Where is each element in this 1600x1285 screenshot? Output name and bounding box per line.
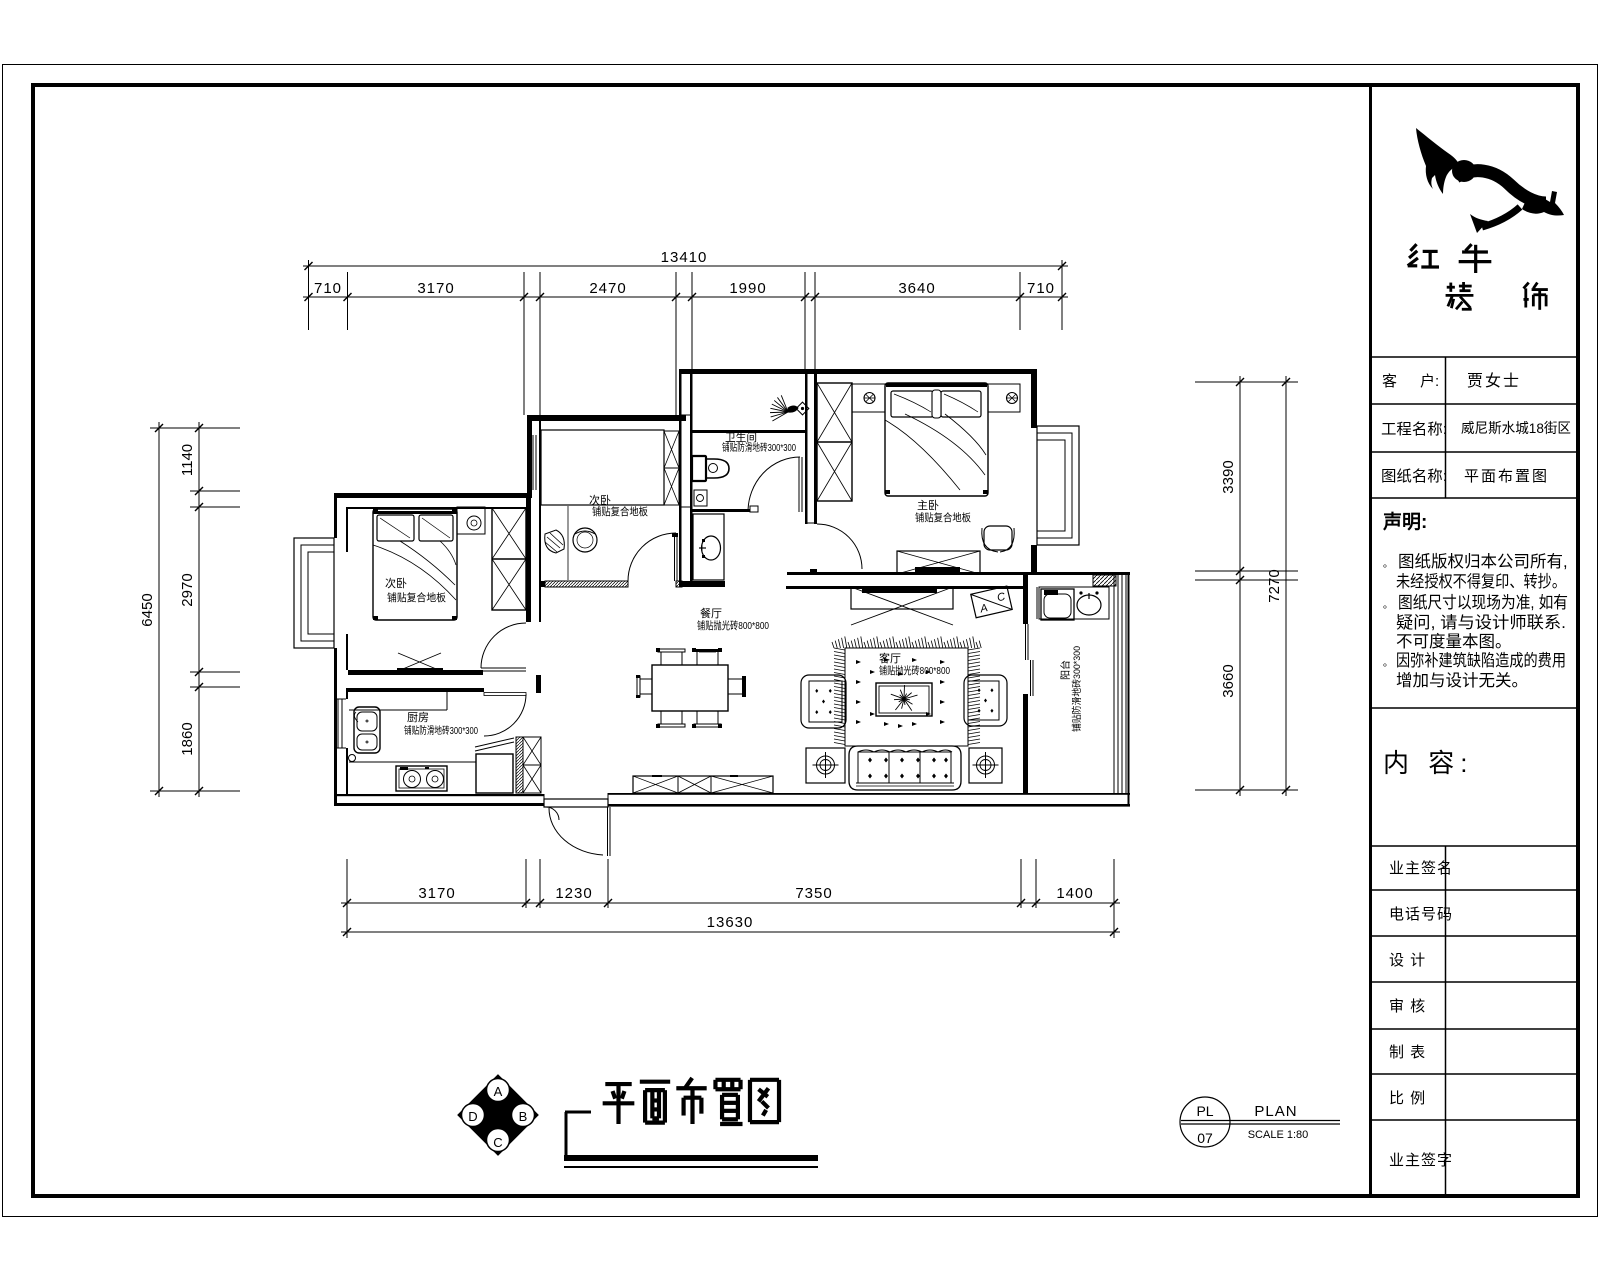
svg-text:3170: 3170 xyxy=(418,885,455,902)
svg-text:。: 。 xyxy=(1383,559,1393,570)
svg-text:电话号码: 电话号码 xyxy=(1389,906,1453,923)
svg-text:客厅: 客厅 xyxy=(879,651,901,665)
svg-text:声明:: 声明: xyxy=(1382,510,1427,533)
svg-text:A: A xyxy=(494,1084,503,1099)
svg-text:13410: 13410 xyxy=(661,249,708,266)
svg-text:2470: 2470 xyxy=(589,280,626,297)
svg-text:铺贴复合地板: 铺贴复合地板 xyxy=(592,505,648,518)
svg-text:铺贴防滑地砖300*300: 铺贴防滑地砖300*300 xyxy=(1071,646,1083,732)
svg-text:6450: 6450 xyxy=(139,593,156,626)
svg-text:铺贴抛光砖800*800: 铺贴抛光砖800*800 xyxy=(879,664,950,677)
svg-text:PLAN: PLAN xyxy=(1254,1103,1297,1120)
svg-text:增加与设计无关。: 增加与设计无关。 xyxy=(1396,671,1528,690)
svg-text:因弥补建筑缺陷造成的费用: 因弥补建筑缺陷造成的费用 xyxy=(1396,651,1566,670)
svg-text:主卧: 主卧 xyxy=(917,499,939,512)
svg-text:铺贴复合地板: 铺贴复合地板 xyxy=(915,511,971,524)
svg-text:内 容:: 内 容: xyxy=(1383,748,1473,778)
svg-text:710: 710 xyxy=(314,280,342,297)
svg-text:厨房: 厨房 xyxy=(407,711,429,724)
svg-text:1990: 1990 xyxy=(729,280,766,297)
svg-text:图纸尺寸以现场为准, 如有: 图纸尺寸以现场为准, 如有 xyxy=(1398,593,1568,612)
svg-text:07: 07 xyxy=(1197,1130,1213,1146)
svg-text:铺贴抛光砖800*800: 铺贴抛光砖800*800 xyxy=(697,619,769,632)
svg-text:7350: 7350 xyxy=(795,885,832,902)
svg-text:业主签字: 业主签字 xyxy=(1389,1152,1453,1169)
svg-text:客: 客 xyxy=(1382,373,1397,390)
svg-text:SCALE 1:80: SCALE 1:80 xyxy=(1248,1129,1309,1141)
svg-text:设 计: 设 计 xyxy=(1389,952,1426,969)
svg-text:图纸版权归本公司所有,: 图纸版权归本公司所有, xyxy=(1398,552,1568,571)
svg-text:比 例: 比 例 xyxy=(1389,1090,1426,1107)
svg-text:图纸名称:: 图纸名称: xyxy=(1381,468,1447,485)
svg-text:2970: 2970 xyxy=(179,573,196,606)
svg-text:13630: 13630 xyxy=(707,914,754,931)
svg-text:3390: 3390 xyxy=(1220,460,1237,493)
svg-text:PL: PL xyxy=(1196,1103,1213,1119)
svg-text:餐厅: 餐厅 xyxy=(700,606,722,620)
svg-text:B: B xyxy=(519,1109,528,1124)
svg-text:工程名称:: 工程名称: xyxy=(1381,421,1447,438)
svg-text:7270: 7270 xyxy=(1266,569,1283,602)
svg-text:3660: 3660 xyxy=(1220,664,1237,697)
svg-text:疑问, 请与设计师联系.: 疑问, 请与设计师联系. xyxy=(1396,613,1566,632)
svg-text:710: 710 xyxy=(1027,280,1055,297)
svg-text:1400: 1400 xyxy=(1056,885,1093,902)
svg-text:C: C xyxy=(493,1135,502,1150)
svg-text:。: 。 xyxy=(1383,600,1393,611)
svg-text:铺贴复合地板: 铺贴复合地板 xyxy=(387,591,446,604)
svg-text:。: 。 xyxy=(1383,658,1393,669)
svg-text:业主签名: 业主签名 xyxy=(1389,860,1453,877)
svg-text:贾女士: 贾女士 xyxy=(1467,371,1521,390)
svg-text:阳台: 阳台 xyxy=(1059,660,1072,680)
svg-text:威尼斯水城18街区: 威尼斯水城18街区 xyxy=(1461,420,1571,436)
svg-text:不可度量本图。: 不可度量本图。 xyxy=(1396,632,1512,651)
svg-text:1230: 1230 xyxy=(555,885,592,902)
svg-text:次卧: 次卧 xyxy=(385,576,407,590)
svg-text:卫生间: 卫生间 xyxy=(725,430,757,444)
svg-text:次卧: 次卧 xyxy=(589,493,611,507)
svg-text:平面布置图: 平面布置图 xyxy=(1464,468,1549,485)
svg-text:3170: 3170 xyxy=(417,280,454,297)
svg-text:审 核: 审 核 xyxy=(1389,998,1426,1015)
svg-text:铺贴防滑地砖300*300: 铺贴防滑地砖300*300 xyxy=(404,724,478,737)
svg-text:户:: 户: xyxy=(1420,373,1439,390)
svg-text:D: D xyxy=(468,1109,477,1124)
svg-text:制 表: 制 表 xyxy=(1389,1044,1426,1061)
svg-text:未经授权不得复印、转抄。: 未经授权不得复印、转抄。 xyxy=(1396,572,1566,591)
svg-text:3640: 3640 xyxy=(898,280,935,297)
svg-text:铺贴防滑地砖300*300: 铺贴防滑地砖300*300 xyxy=(722,441,796,454)
svg-text:1140: 1140 xyxy=(179,444,196,476)
svg-text:1860: 1860 xyxy=(179,722,196,755)
